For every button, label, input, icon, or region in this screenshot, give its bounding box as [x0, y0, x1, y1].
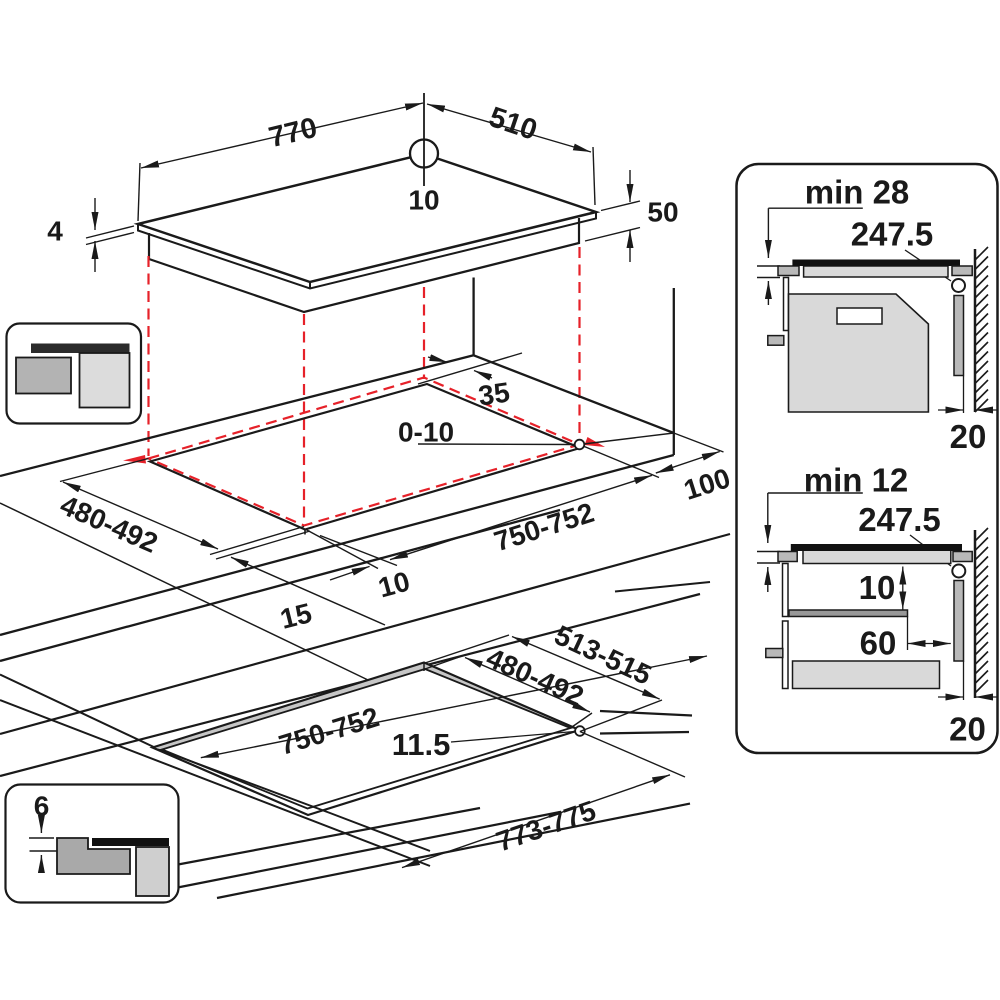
svg-text:20: 20	[949, 711, 986, 748]
svg-text:60: 60	[860, 625, 897, 662]
svg-text:min 28: min 28	[805, 174, 910, 211]
svg-text:11.5: 11.5	[392, 727, 451, 762]
svg-text:10: 10	[859, 569, 896, 606]
svg-text:35: 35	[476, 376, 511, 411]
svg-text:247.5: 247.5	[858, 501, 941, 538]
svg-text:20: 20	[950, 418, 987, 455]
svg-text:4: 4	[47, 216, 63, 247]
svg-text:0-10: 0-10	[398, 417, 454, 448]
svg-text:50: 50	[647, 197, 678, 228]
svg-text:247.5: 247.5	[851, 216, 934, 253]
svg-text:10: 10	[408, 185, 439, 216]
